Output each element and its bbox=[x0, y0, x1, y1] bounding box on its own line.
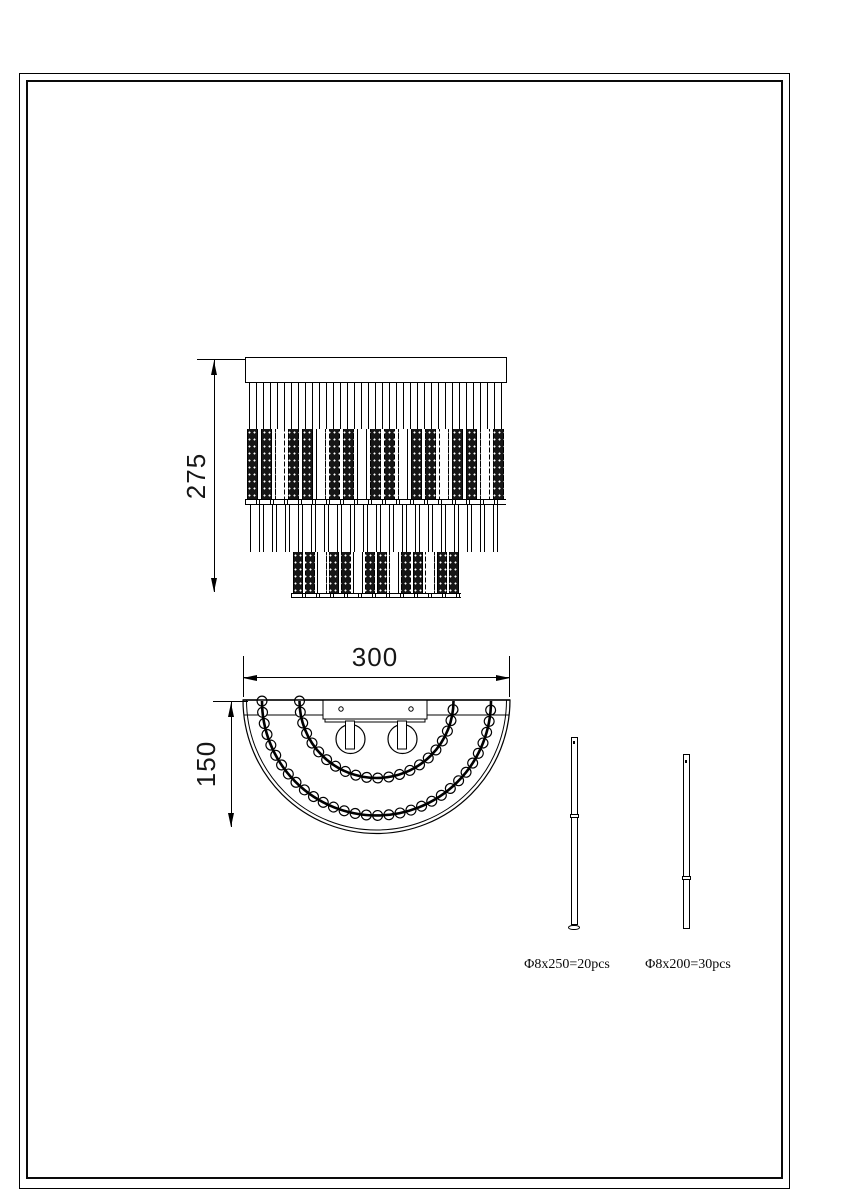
drawing-sheet: 275 300 bbox=[0, 0, 848, 1200]
dim-height-line bbox=[214, 360, 215, 592]
rod-250-joint bbox=[570, 814, 579, 818]
part-label-250: Φ8x250=20pcs bbox=[517, 957, 617, 973]
crystal-rod-tier2 bbox=[293, 552, 459, 593]
hanging-wires-upper bbox=[249, 383, 503, 429]
dim-width-label: 300 bbox=[325, 644, 425, 670]
dim-depth-line bbox=[231, 702, 232, 827]
sheet-border-inner bbox=[26, 80, 783, 1179]
rod-250-top-mark bbox=[573, 741, 575, 744]
crystal-rod-tier1 bbox=[247, 429, 506, 499]
dim-height-extension-line bbox=[197, 359, 245, 360]
rod-250-body bbox=[571, 737, 578, 925]
dim-depth-label: 150 bbox=[193, 724, 219, 804]
socket-right bbox=[398, 721, 407, 749]
dim-width-arrow-right bbox=[496, 675, 510, 681]
dim-width-arrow-left bbox=[243, 675, 257, 681]
rod-200-joint bbox=[682, 876, 691, 880]
rod-200-top-mark bbox=[685, 760, 687, 763]
canopy-plate bbox=[245, 357, 507, 383]
mounting-plate-lip bbox=[325, 719, 425, 722]
tier2-end-caps bbox=[291, 593, 461, 598]
screw-hole-right bbox=[409, 707, 413, 711]
screw-hole-left bbox=[339, 707, 343, 711]
dim-height-arrow-top bbox=[211, 361, 217, 375]
dim-depth-arrow-bottom bbox=[228, 813, 234, 827]
hanging-rods-middle bbox=[250, 505, 503, 552]
dim-width-line bbox=[243, 677, 510, 678]
dim-height-arrow-bottom bbox=[211, 578, 217, 592]
rod-250-end-cap bbox=[568, 925, 580, 930]
dim-height-label: 275 bbox=[183, 436, 209, 516]
part-label-200: Φ8x200=30pcs bbox=[638, 957, 738, 973]
rod-200-body bbox=[683, 754, 690, 929]
socket-left bbox=[346, 721, 355, 749]
dim-depth-arrow-top bbox=[228, 703, 234, 717]
plan-view bbox=[228, 686, 532, 840]
